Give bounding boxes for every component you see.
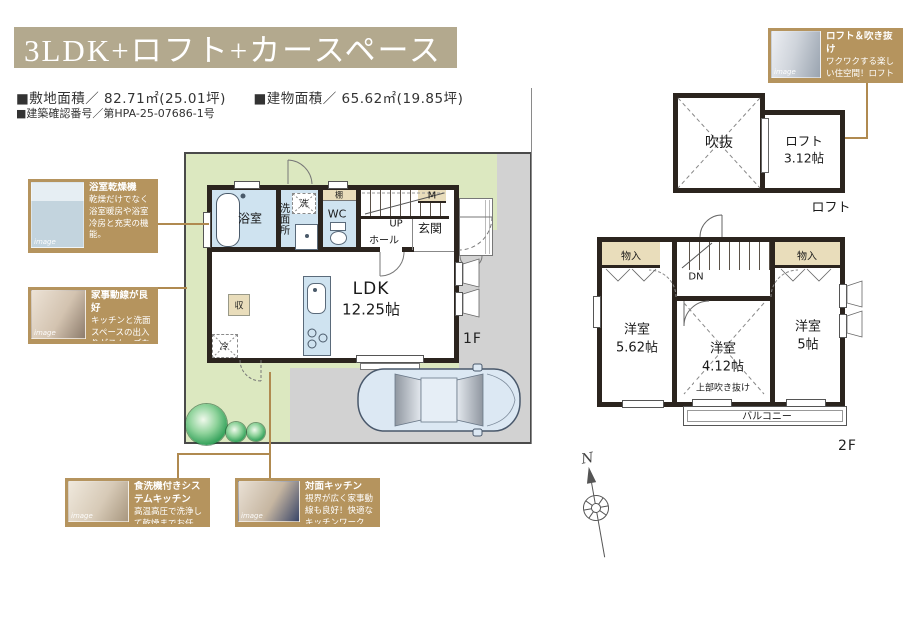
- stairs-2f: [680, 242, 770, 270]
- road-boundary-line: [531, 88, 532, 444]
- connector-bath: [157, 223, 209, 225]
- image-watermark: image: [241, 512, 263, 520]
- image-watermark: image: [34, 329, 56, 337]
- west-room-size: 5.62帖: [616, 337, 658, 356]
- connector-kitchen-h: [177, 453, 271, 455]
- callout-face-kitchen-title: 対面キッチン: [305, 481, 377, 494]
- ldk-window-1: [455, 262, 463, 286]
- ldk-sliding-window: [356, 355, 424, 363]
- bath-top-window: [234, 181, 260, 189]
- dn-label: DN: [688, 272, 703, 283]
- callout-bath-dryer-title: 浴室乾燥機: [89, 182, 155, 195]
- building-area-label: ■建物面積／ 65.62㎡(19.85坪): [253, 91, 463, 107]
- connector-housework: [157, 287, 187, 289]
- kitchen-sink: [307, 283, 326, 314]
- callout-dishwasher-body: 高温高圧で洗浄して乾燥までお任せ！: [134, 507, 207, 524]
- connector-loft-v: [866, 82, 868, 139]
- callout-dishwasher: image 食洗機付きシステムキッチン 高温高圧で洗浄して乾燥までお任せ！: [65, 478, 210, 527]
- west-room-window: [593, 296, 601, 328]
- image-watermark: image: [34, 238, 56, 246]
- callout-loft-title: ロフト＆吹き抜け: [826, 31, 900, 57]
- hall-label: ホール: [369, 232, 399, 247]
- callout-housework-title: 家事動線が良好: [91, 290, 155, 316]
- void-label: 吹抜: [705, 132, 733, 152]
- connector-kitchen-v: [269, 372, 271, 478]
- connector-loft-h: [845, 137, 868, 139]
- callout-dishwasher-title: 食洗機付きシステムキッチン: [134, 481, 207, 507]
- wc-label: WC: [328, 208, 347, 221]
- balcony-label: バルコニー: [742, 408, 792, 423]
- center-room-size: 4.12帖: [702, 356, 744, 375]
- callout-housework-body: キッチンと洗面スペースの出入りがスムーズなプラン。: [91, 316, 155, 341]
- bath-window: [203, 212, 211, 248]
- porch-hatch: [485, 200, 492, 254]
- face-kitchen-photo: image: [238, 481, 300, 522]
- callout-bath-dryer: image 浴室乾燥機 乾燥だけでなく浴室暖房や浴室冷房と充実の機能。: [28, 179, 158, 253]
- shelf-label: 棚: [335, 190, 343, 201]
- callout-face-kitchen-body: 視界が広く家事動線も良好！快適なキッチンワークを。: [305, 494, 377, 524]
- page-title: 3LDK+ロフト+カースペース: [14, 27, 457, 68]
- callout-loft-body: ワクワクする楽しい住空間！ロフトがあるプラン。: [826, 57, 900, 80]
- meter-label: M: [428, 191, 437, 202]
- tree-large: [186, 404, 227, 445]
- page-title-text: 3LDK+ロフト+カースペース: [24, 25, 442, 70]
- void-note-label: 上部吹き抜け: [694, 381, 752, 394]
- loft-ladder-slot: [761, 118, 769, 173]
- vanity-sink: [295, 224, 318, 250]
- center-room-label: 洋室: [710, 338, 736, 357]
- floor-2f-caption: 2F: [838, 438, 857, 454]
- toilet-bowl: [330, 231, 347, 245]
- wall-segment: [677, 296, 770, 301]
- east-room-size: 5帖: [797, 334, 818, 353]
- fridge-label: 冷: [219, 340, 228, 353]
- callout-face-kitchen: image 対面キッチン 視界が広く家事動線も良好！快適なキッチンワークを。: [235, 478, 380, 527]
- east-room-window-2: [839, 314, 847, 338]
- callout-loft: image ロフト＆吹き抜け ワクワクする楽しい住空間！ロフトがあるプラン。: [768, 28, 903, 83]
- compass-north-label: N: [579, 450, 596, 468]
- bath-dryer-photo: image: [31, 182, 84, 248]
- pantry-label: 収: [234, 299, 243, 312]
- confirmation-number-label: ■建築確認番号／第HPA-25-07686-1号: [16, 105, 215, 121]
- wall-segment: [672, 242, 677, 402]
- closet-right-label: 物入: [797, 248, 817, 263]
- connector-dishwasher-v: [177, 453, 179, 478]
- callout-bath-dryer-body: 乾燥だけでなく浴室暖房や浴室冷房と充実の機能。: [89, 195, 155, 243]
- east-room-window-1: [839, 284, 847, 308]
- callout-housework: image 家事動線が良好 キッチンと洗面スペースの出入りがスムーズなプラン。: [28, 287, 158, 344]
- floor-1f-caption: 1F: [463, 331, 482, 347]
- image-watermark: image: [774, 68, 796, 76]
- dishwasher-photo: image: [68, 481, 129, 522]
- tree-small: [247, 423, 265, 441]
- housework-photo: image: [31, 290, 86, 339]
- ldk-label: LDK: [353, 279, 390, 299]
- washroom-label: 洗面所: [279, 203, 292, 236]
- ldk-window-2: [455, 292, 463, 316]
- tree-medium: [226, 422, 246, 442]
- west-room-bottom-window: [622, 400, 664, 408]
- loft-size-label: 3.12帖: [784, 148, 824, 167]
- flyer-page: 3LDK+ロフト+カースペース ■敷地面積／ 82.71㎡(25.01坪) ■建…: [0, 0, 911, 617]
- bathroom-label: 浴室: [238, 210, 262, 227]
- west-room-label: 洋室: [624, 319, 650, 338]
- bathtub: [216, 193, 240, 247]
- up-label: UP: [389, 219, 402, 230]
- wc-window: [328, 181, 348, 189]
- entrance-label: 玄関: [418, 220, 442, 237]
- entrance-step-line: [414, 251, 454, 252]
- ldk-size-label: 12.25帖: [342, 299, 400, 320]
- east-room-label: 洋室: [795, 316, 821, 335]
- area-specs: ■敷地面積／ 82.71㎡(25.01坪) ■建物面積／ 65.62㎡(19.8…: [16, 87, 463, 107]
- hall-entrance-line: [412, 218, 413, 250]
- closet-left-label: 物入: [621, 248, 641, 263]
- wall-segment: [770, 242, 775, 402]
- loft-photo: image: [771, 31, 821, 78]
- image-watermark: image: [71, 512, 93, 520]
- compass-rose: N: [574, 449, 617, 560]
- car-top-view: [353, 363, 525, 437]
- loft-caption: ロフト: [811, 197, 850, 216]
- washer-label: 洗: [299, 197, 308, 210]
- toilet-tank: [330, 222, 346, 231]
